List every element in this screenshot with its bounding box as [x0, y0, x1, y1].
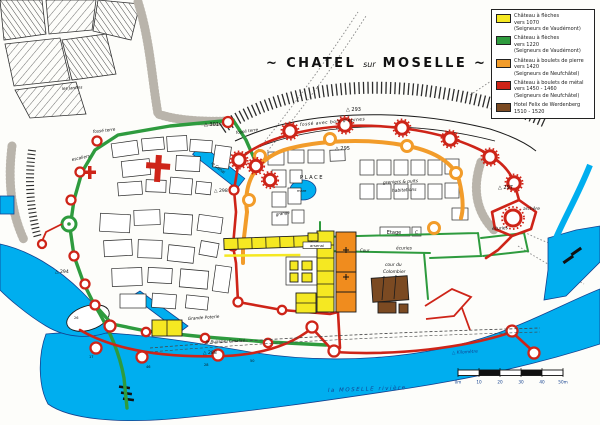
building-parcel [104, 239, 133, 256]
legend-swatch-green [496, 36, 511, 45]
legend-line: Château à flèches [514, 13, 581, 20]
legend-line: vers 1420 [514, 64, 584, 71]
tower-icon [329, 346, 340, 357]
building-parcel [195, 181, 211, 195]
building-parcel [142, 137, 165, 151]
tower-number: 17 [89, 355, 93, 359]
tower-icon [244, 195, 255, 206]
building-parcel [212, 265, 231, 293]
title-part: ~ CHATEL [266, 56, 356, 71]
scale-label: 30 [518, 380, 524, 385]
building-parcel [163, 213, 192, 235]
tower-icon [429, 223, 440, 234]
tower-icon [484, 151, 496, 163]
building-parcel [197, 214, 223, 233]
tower-number: 28 [204, 363, 208, 367]
grenier-parcel [428, 184, 442, 199]
tower-icon [529, 348, 540, 359]
tower-icon [396, 122, 408, 134]
legend-swatch-brown [496, 103, 511, 112]
legend-line: (Seigneurs de Neufchâtel) [514, 71, 584, 78]
label-jardins: les Jardins [62, 85, 83, 91]
building-parcel [176, 155, 201, 171]
building-parcel [190, 139, 213, 153]
legend-line: (Seigneurs de Neufchâtel) [514, 93, 583, 100]
grenier-parcel [445, 183, 459, 198]
grenier-parcel [360, 160, 374, 175]
legend-swatch-yellow [496, 14, 511, 23]
tower-icon [233, 154, 245, 166]
elevation-marker: △ 294 [55, 269, 69, 275]
tower-icon [81, 280, 90, 289]
elevation-marker: △ 293 [346, 107, 361, 113]
legend-swatch-orange [496, 59, 511, 68]
label-ruisseau: le Ruisseau Canalisé [206, 338, 246, 344]
elevation-marker: △ 297 [498, 185, 513, 191]
tower-icon [507, 326, 518, 337]
label-colombier: Colombier [383, 269, 407, 275]
tower-icon [307, 322, 318, 333]
building-parcel [199, 241, 219, 258]
tower-number: 46 [146, 365, 150, 369]
scale-label: 50m [558, 380, 567, 385]
label-cour: Cour [360, 248, 370, 253]
grenier-parcel [377, 184, 391, 199]
tower-icon [284, 125, 296, 137]
building-parcel [118, 181, 143, 196]
tower-icon [105, 321, 116, 332]
elevation-marker: △ 288 [203, 350, 217, 356]
label-mare: mare [297, 189, 307, 193]
building-parcel [100, 213, 131, 233]
building-parcel [272, 192, 286, 207]
building-parcel [148, 267, 173, 283]
tower-1420-orange [336, 232, 356, 312]
legend-line: Château à flèches [514, 35, 581, 42]
building-parcel [167, 135, 188, 151]
legend-entry-1070: Château à flèches vers 1070 (Seigneurs d… [496, 13, 590, 33]
grenier-parcel [411, 160, 425, 175]
scale-label: 40 [539, 380, 545, 385]
elevation-marker: △ 301 [204, 122, 219, 128]
tower-icon [137, 352, 148, 363]
elevation-marker: △ 295 [335, 146, 350, 152]
label-grande-poterie: Grande Poterie [188, 314, 220, 321]
label-arsenal: arsenal [310, 243, 324, 248]
hotel-werdenberg-brown [371, 275, 409, 313]
legend-entry-1220: Château à flèches vers 1220 (Seigneurs d… [496, 35, 590, 55]
tower-icon [91, 301, 100, 310]
tower-icon [93, 137, 102, 146]
tower-icon [250, 160, 262, 172]
label-etage: Etage [387, 230, 401, 236]
tower-icon [76, 168, 85, 177]
label-etage-c: C [415, 230, 418, 236]
building-parcel [120, 294, 146, 308]
scale-label: 20 [497, 380, 503, 385]
tower-icon [91, 343, 102, 354]
tower-icon [451, 168, 462, 179]
building-parcel [308, 150, 324, 163]
castle-buildings [268, 150, 468, 285]
tower-icon [234, 298, 243, 307]
grenier-parcel [394, 160, 408, 175]
building-parcel [112, 267, 143, 286]
tower-icon [264, 174, 276, 186]
legend-line: Château à boulets de métal [514, 80, 583, 87]
map-title: ~ CHATEL sur MOSELLE ~ [266, 56, 487, 71]
tower-icon [142, 328, 150, 336]
building-parcel [138, 240, 163, 259]
legend-entry-1510: Hotel Felix de Werdenberg 1510 - 1520 [496, 102, 590, 115]
tower-icon [67, 196, 76, 205]
tower-icon [70, 252, 79, 261]
grenier-parcel [360, 184, 374, 199]
building-parcel [134, 210, 161, 226]
legend-entry-1420: Château à boulets de pierre vers 1420 (S… [496, 58, 590, 78]
building-parcel [185, 295, 208, 310]
legend-line: (Seigneurs de Vaudémont) [514, 48, 581, 55]
tower-icon [223, 117, 233, 127]
building-parcel [292, 210, 304, 223]
scale-label: 10 [476, 380, 482, 385]
legend: Château à flèches vers 1070 (Seigneurs d… [491, 9, 595, 119]
label-ecuries: écuries [396, 245, 413, 252]
tower-icon [278, 306, 286, 314]
tower-icon [38, 240, 46, 248]
title-part: MOSELLE ~ [383, 56, 488, 71]
tower-icon [325, 134, 336, 145]
tower-icon [230, 186, 239, 195]
grenier-parcel [428, 160, 442, 175]
legend-swatch-red [496, 81, 511, 90]
label-place: PLACE [300, 175, 324, 181]
building-parcel [288, 150, 304, 163]
tower-icon [505, 210, 521, 226]
legend-line: Hotel Felix de Werdenberg [514, 102, 580, 109]
legend-line: 1510 - 1520 [514, 109, 580, 116]
legend-entry-1450: Château à boulets de métal vers 1450 - 1… [496, 80, 590, 100]
building-parcel [167, 245, 195, 264]
tower-icon [444, 133, 456, 145]
tower-icon [402, 141, 413, 152]
label-fosse-terre: fossé terre [93, 127, 116, 134]
yellow-range [224, 236, 312, 250]
chatel-sur-moselle-map: 0m 10 20 30 40 50m les Jardins fossé ter… [0, 0, 600, 425]
grenier-parcel [377, 160, 391, 175]
legend-line: (Seigneurs de Vaudémont) [514, 26, 581, 33]
tower-number: 26 [74, 316, 78, 320]
building-parcel [179, 269, 208, 289]
label-colombier: cour du [385, 262, 402, 268]
legend-line: Château à boulets de pierre [514, 58, 584, 65]
tower-number: 50 [250, 359, 254, 363]
elevation-marker: △ 298 [214, 188, 228, 194]
building-parcel [169, 177, 192, 195]
label-archere: archère [523, 205, 540, 212]
scale-label: 0m [455, 380, 462, 385]
title-part: sur [363, 60, 376, 69]
river-channel-east [544, 226, 600, 300]
building-parcel [111, 140, 139, 157]
castle-1070-yellow [224, 236, 313, 258]
building-parcel [152, 293, 177, 309]
